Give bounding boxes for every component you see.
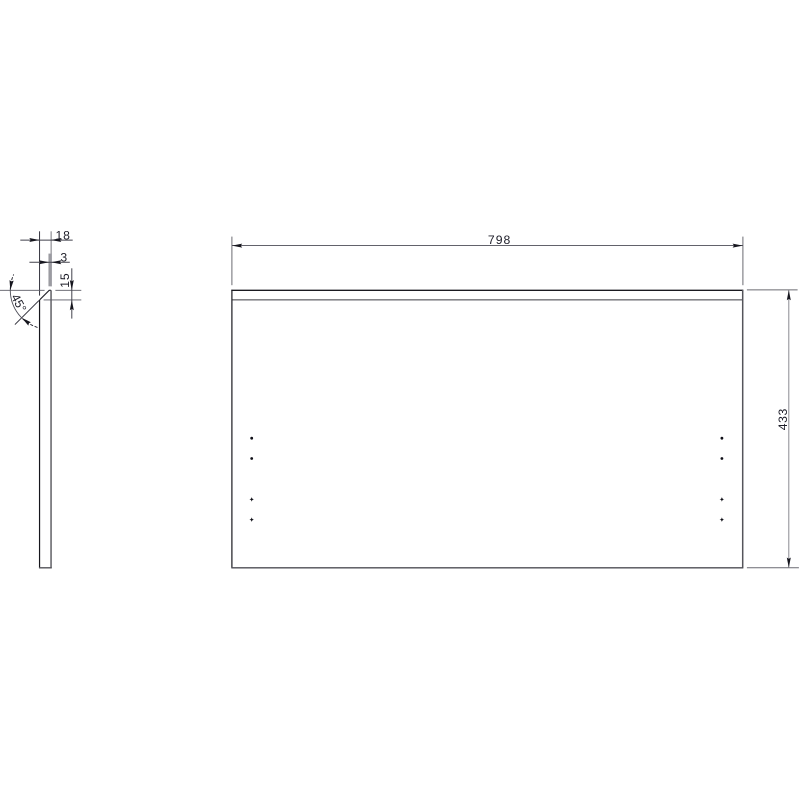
svg-text:15: 15 — [58, 273, 72, 288]
svg-text:433: 433 — [776, 408, 790, 430]
svg-text:45°: 45° — [8, 292, 29, 315]
svg-text:3: 3 — [60, 251, 67, 265]
svg-text:18: 18 — [56, 229, 71, 243]
svg-text:798: 798 — [488, 233, 511, 247]
